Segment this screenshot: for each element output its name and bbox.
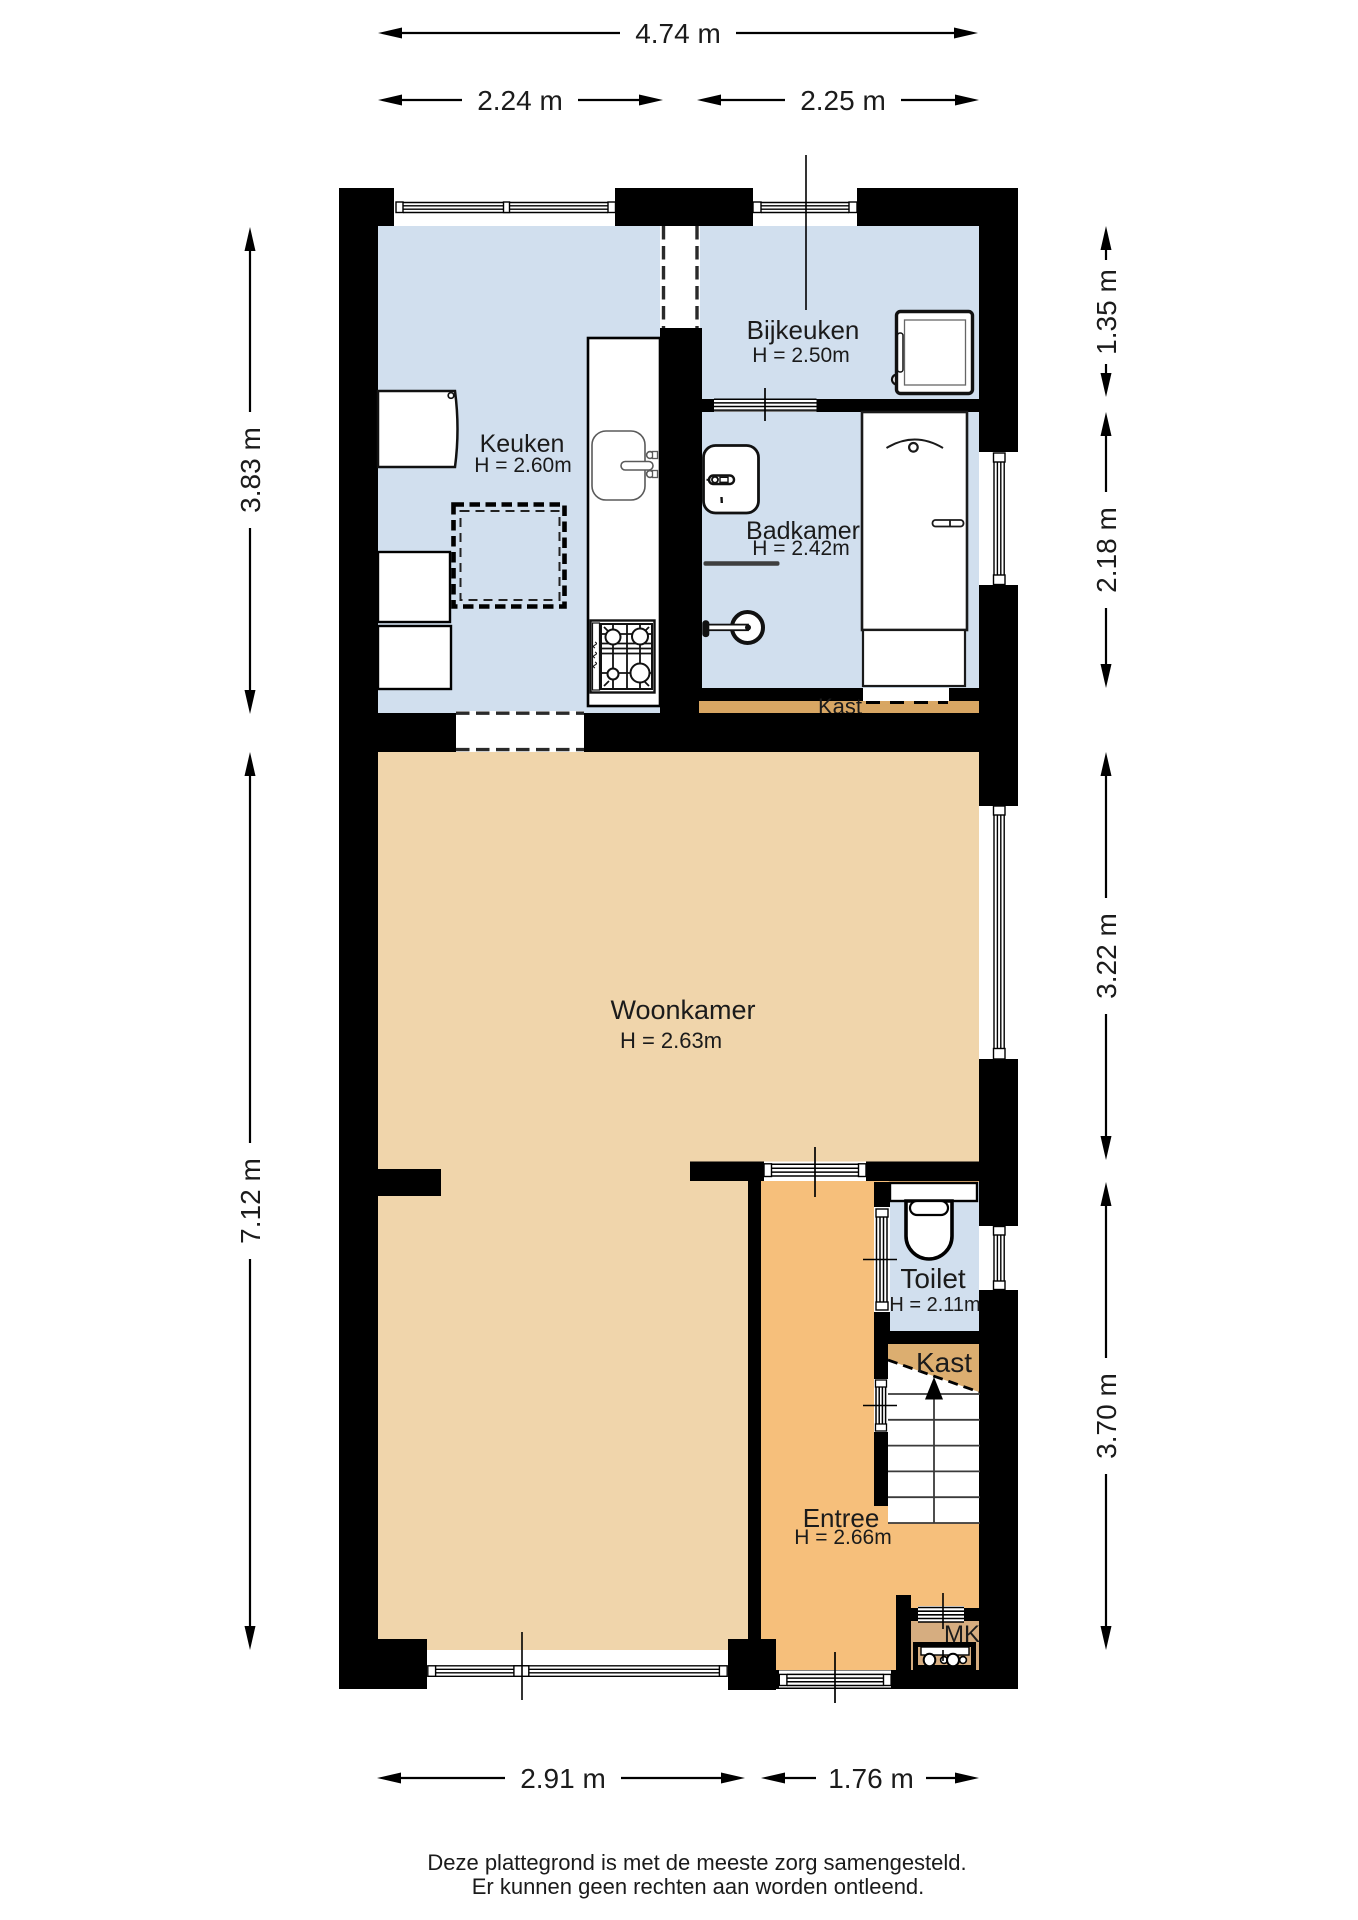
svg-text:1.76 m: 1.76 m — [828, 1763, 914, 1794]
svg-text:H = 2.63m: H = 2.63m — [620, 1028, 722, 1053]
svg-text:3.83 m: 3.83 m — [235, 427, 266, 513]
svg-text:2.91 m: 2.91 m — [520, 1763, 606, 1794]
svg-text:7.12 m: 7.12 m — [235, 1158, 266, 1244]
svg-text:3.22 m: 3.22 m — [1091, 913, 1122, 999]
svg-text:4.74 m: 4.74 m — [635, 18, 721, 49]
svg-text:H = 2.42m: H = 2.42m — [752, 537, 849, 560]
svg-text:3.70 m: 3.70 m — [1091, 1373, 1122, 1459]
svg-text:2.24 m: 2.24 m — [477, 85, 563, 116]
svg-text:Woonkamer: Woonkamer — [610, 995, 755, 1025]
svg-text:Deze plattegrond is met de mee: Deze plattegrond is met de meeste zorg s… — [427, 1850, 966, 1875]
svg-text:Toilet: Toilet — [900, 1263, 966, 1294]
svg-text:2.18 m: 2.18 m — [1091, 507, 1122, 593]
svg-text:Kast: Kast — [916, 1347, 972, 1378]
svg-text:H = 2.60m: H = 2.60m — [474, 454, 571, 477]
svg-text:H = 2.11m: H = 2.11m — [889, 1294, 980, 1316]
svg-text:H = 2.66m: H = 2.66m — [794, 1526, 891, 1549]
svg-text:H = 2.50m: H = 2.50m — [752, 344, 849, 367]
svg-text:Bijkeuken: Bijkeuken — [747, 315, 860, 345]
svg-text:1.35 m: 1.35 m — [1091, 269, 1122, 355]
svg-text:Er kunnen geen rechten aan wor: Er kunnen geen rechten aan worden ontlee… — [472, 1874, 925, 1899]
svg-text:MK: MK — [944, 1621, 980, 1648]
svg-text:2.25 m: 2.25 m — [800, 85, 886, 116]
